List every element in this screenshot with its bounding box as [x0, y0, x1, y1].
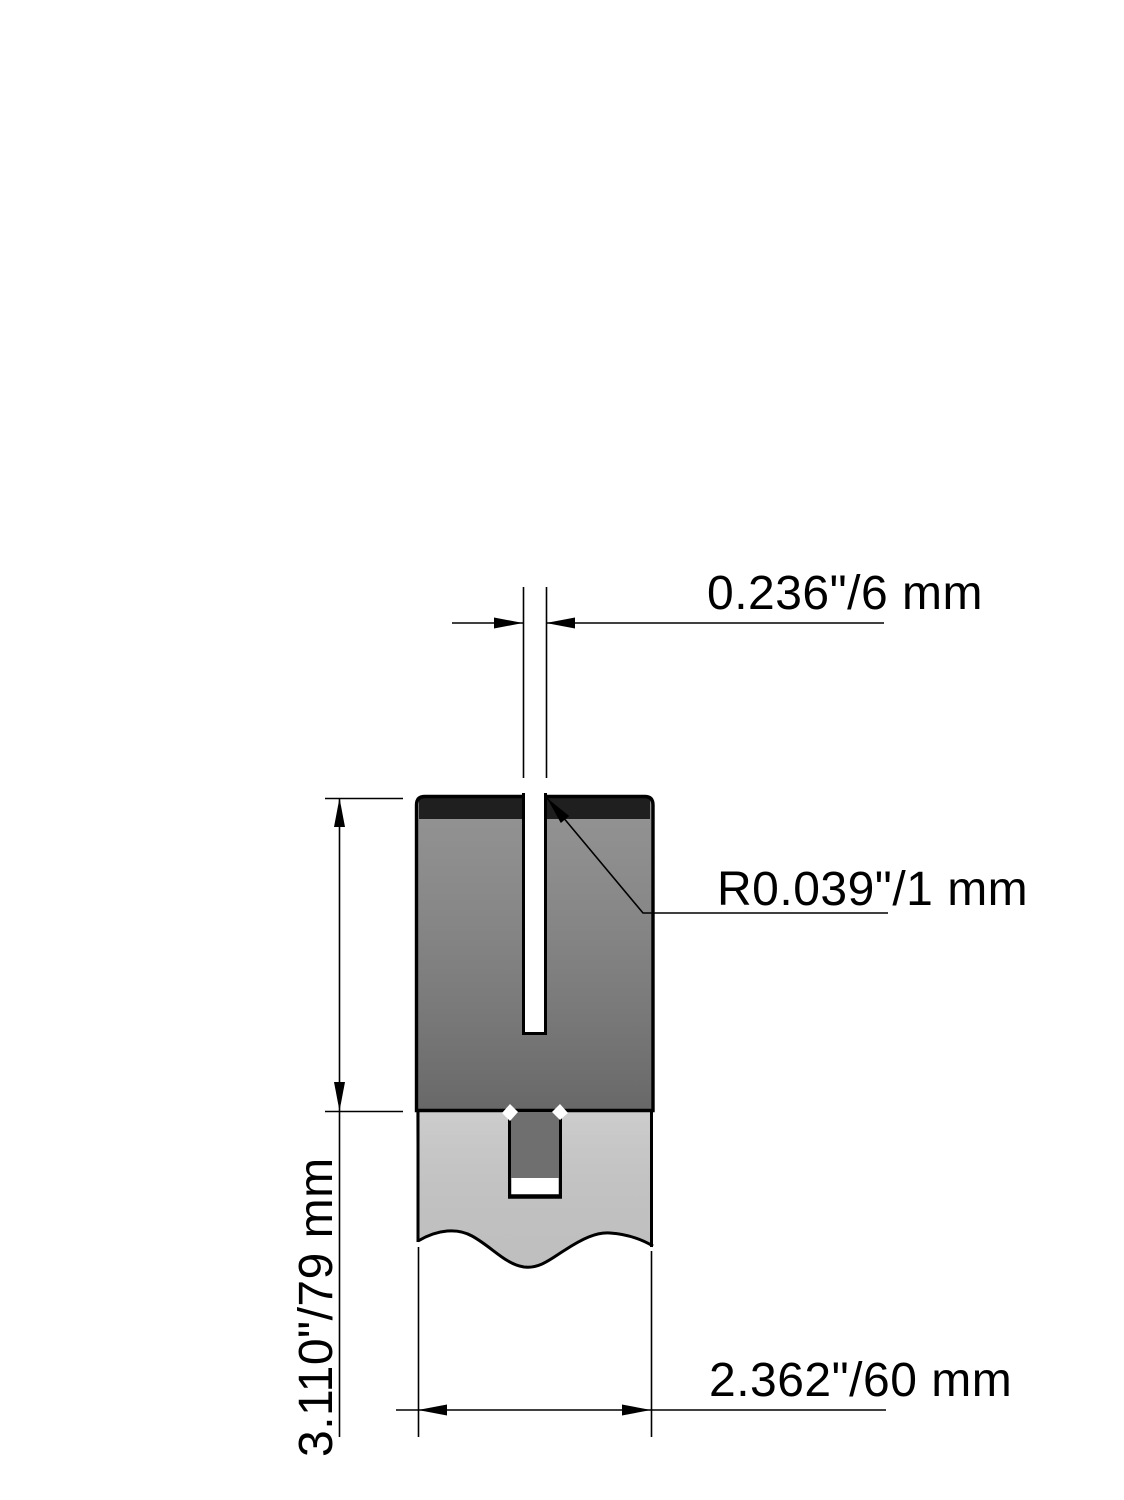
die-width-arrow-right — [622, 1405, 651, 1416]
slot-width-arrow-right — [546, 618, 575, 629]
tang-fill — [510, 1112, 560, 1178]
die-height-arrow-bottom — [334, 1082, 345, 1111]
die-width-dimension: 2.362"/60 mm — [396, 1247, 1012, 1437]
die-height-arrow-top — [334, 798, 345, 827]
slot-width-dimension: 0.236"/6 mm — [452, 567, 983, 778]
die-width-arrow-left — [418, 1405, 447, 1416]
die-section — [417, 791, 654, 1111]
corner-radius-label: R0.039"/1 mm — [717, 863, 1028, 916]
slot-width-arrow-left — [494, 618, 523, 629]
die-height-dimension: 3.110"/79 mm — [290, 798, 403, 1457]
slot-width-label: 0.236"/6 mm — [707, 567, 983, 620]
die-width-label: 2.362"/60 mm — [709, 1354, 1012, 1407]
die-cross-section-drawing: 0.236"/6 mm R0.039"/1 mm 3.110"/79 mm 2.… — [0, 0, 1124, 1500]
pocket-clearance-gap — [512, 1178, 558, 1195]
slot-opening — [523, 791, 546, 1035]
die-height-label: 3.110"/79 mm — [290, 1157, 343, 1457]
drawing-canvas: 0.236"/6 mm R0.039"/1 mm 3.110"/79 mm 2.… — [0, 0, 1124, 1500]
